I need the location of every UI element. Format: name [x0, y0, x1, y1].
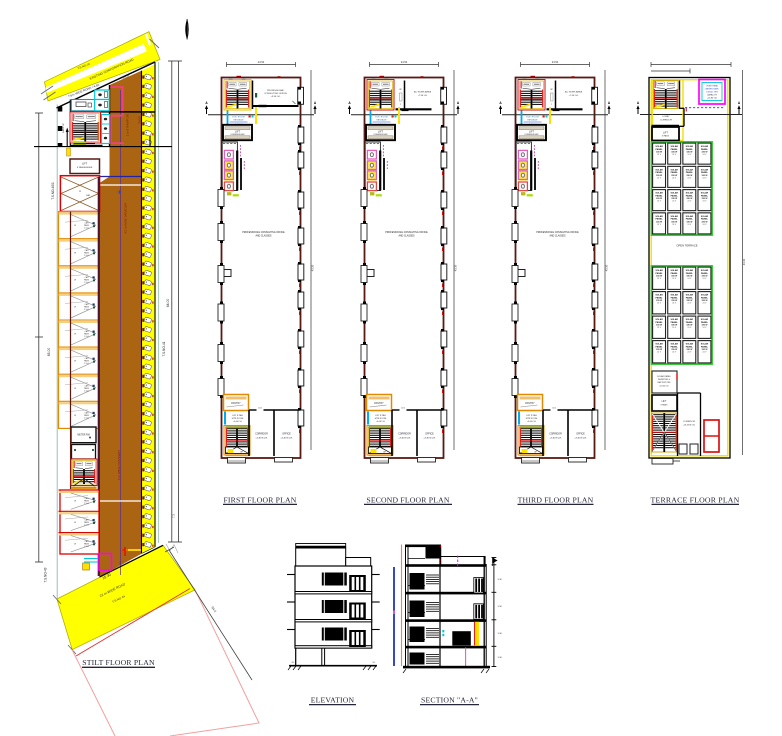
svg-text:WATER TANK: WATER TANK [705, 88, 719, 91]
svg-text:ELE. ROOM: ELE. ROOM [526, 117, 538, 119]
svg-text:94.0: 94.0 [210, 606, 217, 614]
svg-text:3.30: 3.30 [498, 606, 503, 608]
svg-text:SECTION "A-A": SECTION "A-A" [421, 695, 478, 704]
svg-text:PANEL: PANEL [686, 321, 694, 324]
svg-text:METER RM: METER RM [77, 435, 89, 437]
svg-text:+7.30 LVL: +7.30 LVL [418, 95, 429, 97]
svg-text:SOLAR: SOLAR [670, 168, 678, 171]
svg-text:SOLAR: SOLAR [686, 192, 694, 195]
svg-text:2.5x5: 2.5x5 [84, 417, 89, 419]
svg-text:SOLAR: SOLAR [701, 215, 709, 218]
svg-text:A: A [205, 101, 208, 105]
svg-text:7.3: 7.3 [172, 514, 176, 518]
svg-text:+3.30 M LVL: +3.30 M LVL [280, 438, 293, 440]
svg-text:+3.30 M LVL: +3.30 M LVL [574, 438, 587, 440]
svg-text:BATTERY RM: BATTERY RM [658, 381, 671, 384]
svg-text:SOLAR: SOLAR [701, 343, 709, 346]
svg-text:SOLAR: SOLAR [655, 192, 663, 195]
svg-text:A: A [738, 101, 741, 105]
svg-text:SOLAR: SOLAR [655, 343, 663, 346]
svg-text:SOLAR: SOLAR [670, 269, 678, 272]
svg-text:PANEL: PANEL [671, 148, 679, 151]
svg-text:65.00: 65.00 [47, 348, 51, 357]
svg-text:+18.45 M LVL: +18.45 M LVL [683, 425, 696, 427]
svg-text:SOLAR PANEL: SOLAR PANEL [657, 375, 672, 378]
svg-text:SOLAR: SOLAR [701, 192, 709, 195]
svg-text:PANEL: PANEL [671, 218, 679, 221]
svg-text:SOLAR: SOLAR [655, 318, 663, 321]
svg-text:2.5x5: 2.5x5 [84, 282, 89, 284]
svg-text:1010: 1010 [385, 79, 389, 81]
svg-text:SOLAR: SOLAR [686, 343, 694, 346]
svg-text:PANEL: PANEL [671, 345, 679, 348]
svg-text:PANEL: PANEL [671, 171, 679, 174]
svg-text:1010: 1010 [372, 79, 376, 81]
svg-text:LIFT 8 PAS: LIFT 8 PAS [375, 414, 386, 417]
svg-text:PANEL: PANEL [671, 321, 679, 324]
svg-text:T.S.NO-41: T.S.NO-41 [162, 341, 166, 356]
svg-text:+18.45 LVL: +18.45 LVL [659, 386, 669, 388]
svg-text:RAMP UP: RAMP UP [62, 123, 65, 133]
svg-text:T.S.NO-43: T.S.NO-43 [44, 567, 48, 582]
svg-text:PANEL: PANEL [701, 296, 709, 299]
svg-text:1 in 8 RAMP DN: 1 in 8 RAMP DN [126, 114, 130, 136]
svg-text:PASSAGE: PASSAGE [376, 119, 387, 122]
svg-text:CORRIDOR: CORRIDOR [549, 434, 562, 436]
svg-text:24.54: 24.54 [258, 60, 265, 64]
svg-text:LIFT: LIFT [663, 132, 668, 135]
svg-text:SOLAR: SOLAR [686, 294, 694, 297]
svg-text:LIFT 8 PAS: LIFT 8 PAS [526, 414, 537, 417]
svg-text:2.5x5: 2.5x5 [84, 228, 89, 230]
svg-text:PASSAGE: PASSAGE [527, 119, 538, 122]
svg-text:PANTRY: PANTRY [525, 402, 535, 405]
svg-text:SOLAR: SOLAR [686, 215, 694, 218]
svg-text:STILT FLOOR PLAN: STILT FLOOR PLAN [82, 658, 155, 667]
svg-text:6 m WIDE DRIVEWAY: 6 m WIDE DRIVEWAY [117, 450, 121, 480]
svg-text:PANEL: PANEL [686, 171, 694, 174]
svg-text:OVER HEAD: OVER HEAD [706, 85, 719, 88]
svg-text:PROFESSIONAL: PROFESSIONAL [267, 89, 285, 92]
svg-text:24.54: 24.54 [552, 60, 559, 64]
svg-text:+3.30 M LVL: +3.30 M LVL [549, 438, 562, 440]
svg-text:64.00: 64.00 [166, 299, 170, 308]
svg-text:SOLAR: SOLAR [670, 343, 678, 346]
svg-text:SOLAR: SOLAR [701, 294, 709, 297]
svg-text:PANEL: PANEL [656, 148, 664, 151]
svg-text:PANEL: PANEL [701, 194, 709, 197]
svg-text:SOLAR: SOLAR [670, 145, 678, 148]
svg-text:CORRIDOR: CORRIDOR [398, 434, 411, 436]
svg-text:SOLAR: SOLAR [670, 215, 678, 218]
svg-text:ELEVATION: ELEVATION [311, 695, 355, 704]
svg-text:T.S.NO-40/1: T.S.NO-40/1 [51, 182, 55, 200]
svg-text:+3.30 M LVL: +3.30 M LVL [423, 438, 436, 440]
svg-text:PANEL: PANEL [671, 194, 679, 197]
svg-text:SOLAR: SOLAR [701, 318, 709, 321]
svg-text:1010: 1010 [536, 79, 540, 81]
svg-text:PANEL: PANEL [686, 194, 694, 197]
svg-text:SOLAR: SOLAR [655, 215, 663, 218]
svg-text:SOLAR: SOLAR [686, 145, 694, 148]
svg-text:8 PASSENGER: 8 PASSENGER [231, 133, 246, 136]
svg-text:1010: 1010 [229, 79, 233, 81]
svg-text:PANTRY: PANTRY [374, 402, 384, 405]
svg-text:PANEL: PANEL [671, 272, 679, 275]
svg-text:A: A [314, 101, 317, 105]
svg-text:PANTRY: PANTRY [231, 402, 241, 405]
svg-text:2.5x5: 2.5x5 [84, 390, 89, 392]
svg-text:43.30: 43.30 [311, 264, 315, 271]
svg-text:A: A [637, 101, 640, 105]
svg-text:CORRIDOR: CORRIDOR [255, 434, 268, 436]
svg-text:43.30: 43.30 [742, 258, 746, 265]
svg-text:+0.00 LVL: +0.00 LVL [527, 421, 537, 423]
svg-text:24.54: 24.54 [401, 60, 408, 64]
svg-text:8 PASSENGER: 8 PASSENGER [77, 166, 93, 169]
svg-text:PANEL: PANEL [656, 171, 664, 174]
svg-text:+3.30 M LVL: +3.30 M LVL [255, 438, 268, 440]
svg-text:PROFESSIONAL CONSULTING OFFICE: PROFESSIONAL CONSULTING OFFICE [536, 231, 579, 234]
svg-text:PANEL: PANEL [701, 171, 709, 174]
svg-text:MTR ROOM: MTR ROOM [232, 418, 244, 420]
svg-text:PANEL: PANEL [686, 272, 694, 275]
svg-text:LIFT: LIFT [662, 401, 667, 403]
svg-text:2.5x5: 2.5x5 [84, 524, 89, 526]
svg-text:CORRIDOR: CORRIDOR [660, 120, 672, 122]
svg-text:A: A [499, 101, 502, 105]
svg-text:PANEL: PANEL [701, 148, 709, 151]
svg-text:2.5x5: 2.5x5 [84, 503, 89, 505]
svg-text:AC WORK AREA: AC WORK AREA [414, 91, 431, 94]
svg-text:OFFICE: OFFICE [576, 434, 585, 436]
svg-text:PANEL: PANEL [701, 272, 709, 275]
svg-text:8 PASS: 8 PASS [662, 135, 670, 138]
svg-text:SOLAR: SOLAR [701, 269, 709, 272]
svg-text:PANEL: PANEL [656, 272, 664, 275]
svg-text:PANEL: PANEL [686, 218, 694, 221]
svg-text:4.5 m WIDE DRIVEWAY: 4.5 m WIDE DRIVEWAY [124, 202, 128, 234]
svg-text:+7.30 LVL: +7.30 LVL [569, 95, 580, 97]
svg-text:+3.30 M LVL: +3.30 M LVL [398, 438, 411, 440]
svg-text:LIFT: LIFT [378, 130, 384, 134]
svg-text:3.30: 3.30 [498, 657, 503, 659]
svg-text:3.30: 3.30 [498, 579, 503, 581]
svg-text:SOLAR: SOLAR [670, 192, 678, 195]
svg-text:2.5x5: 2.5x5 [84, 546, 89, 548]
svg-text:THIRD FLOOR PLAN: THIRD FLOOR PLAN [518, 495, 594, 504]
svg-text:8 PASSENGER: 8 PASSENGER [525, 133, 540, 136]
svg-text:UP: UP [534, 452, 538, 454]
svg-text:A: A [457, 101, 460, 105]
svg-text:SOLAR: SOLAR [686, 269, 694, 272]
svg-text:PANEL: PANEL [701, 218, 709, 221]
svg-text:8 PASSENGER: 8 PASSENGER [374, 133, 389, 136]
svg-text:UP: UP [240, 452, 244, 454]
svg-text:SOLAR: SOLAR [670, 294, 678, 297]
svg-text:CAR: CAR [86, 194, 91, 197]
svg-text:INVERTER &: INVERTER & [658, 379, 671, 381]
svg-text:PANEL: PANEL [686, 345, 694, 348]
svg-text:1010: 1010 [552, 408, 556, 410]
svg-text:AND CLASSES: AND CLASSES [398, 235, 415, 238]
svg-text:SOLAR: SOLAR [670, 318, 678, 321]
svg-text:CORRIDOR: CORRIDOR [683, 421, 695, 423]
svg-text:PANEL: PANEL [671, 296, 679, 299]
svg-text:SOLAR: SOLAR [655, 168, 663, 171]
svg-text:SHOP: SHOP [138, 116, 142, 124]
svg-text:CAPACITY: CAPACITY [707, 94, 718, 97]
svg-text:LIFT: LIFT [529, 130, 535, 134]
svg-text:1010: 1010 [523, 79, 527, 81]
svg-text:2.5x5: 2.5x5 [84, 336, 89, 338]
svg-text:PASSAGE: PASSAGE [233, 119, 244, 122]
svg-text:2.5x5: 2.5x5 [84, 309, 89, 311]
svg-text:PANEL: PANEL [686, 296, 694, 299]
svg-text:PANEL: PANEL [701, 321, 709, 324]
svg-text:1010: 1010 [242, 79, 246, 81]
svg-text:MTR ROOM: MTR ROOM [526, 418, 538, 420]
svg-text:GL: GL [480, 663, 484, 665]
svg-text:+16.80 LVL: +16.80 LVL [707, 98, 718, 100]
svg-text:SOLAR: SOLAR [655, 145, 663, 148]
svg-text:2: 2 [400, 104, 401, 106]
svg-text:1010: 1010 [401, 408, 405, 410]
svg-text:+0.00 LVL: +0.00 LVL [233, 421, 243, 423]
svg-text:FIRST FLOOR PLAN: FIRST FLOOR PLAN [223, 495, 296, 504]
svg-text:43.30: 43.30 [605, 264, 609, 271]
svg-text:+0.00 LVL: +0.00 LVL [376, 421, 386, 423]
svg-text:ELE. ROOM: ELE. ROOM [375, 117, 387, 119]
svg-text:LIFT: LIFT [235, 130, 241, 134]
svg-text:A: A [608, 101, 611, 105]
svg-text:SOLAR: SOLAR [655, 269, 663, 272]
svg-text:SOLAR: SOLAR [701, 168, 709, 171]
svg-text:TERRACE FLOOR PLAN: TERRACE FLOOR PLAN [651, 495, 740, 504]
svg-text:SOLAR: SOLAR [655, 294, 663, 297]
svg-text:OFFICE: OFFICE [425, 434, 434, 436]
svg-text:OPEN TERRACE: OPEN TERRACE [676, 244, 697, 248]
svg-text:2.5x5: 2.5x5 [84, 363, 89, 365]
svg-text:8 PASS: 8 PASS [661, 404, 669, 407]
svg-text:LOBBY: LOBBY [662, 116, 670, 118]
svg-text:LIFT 8 PAS: LIFT 8 PAS [232, 414, 243, 417]
svg-text:UP: UP [383, 452, 387, 454]
svg-text:A: A [348, 101, 351, 105]
svg-text:1010: 1010 [258, 408, 262, 410]
svg-text:2.5x5: 2.5x5 [84, 255, 89, 257]
svg-text:PANEL: PANEL [656, 194, 664, 197]
svg-text:AC WORK AREA: AC WORK AREA [565, 91, 582, 94]
svg-text:CONSULTING OFFICE: CONSULTING OFFICE [264, 93, 287, 95]
svg-text:GL: GL [373, 662, 377, 664]
svg-text:ELE. ROOM: ELE. ROOM [232, 117, 244, 119]
svg-text:43.30: 43.30 [454, 264, 458, 271]
svg-text:PANEL: PANEL [656, 218, 664, 221]
svg-text:AND CLASSES: AND CLASSES [549, 235, 566, 238]
svg-text:SOLAR: SOLAR [701, 145, 709, 148]
svg-text:3.30: 3.30 [498, 633, 503, 635]
svg-text:PROFESSIONAL CONSULTING OFFICE: PROFESSIONAL CONSULTING OFFICE [385, 231, 428, 234]
svg-text:SECOND FLOOR PLAN: SECOND FLOOR PLAN [366, 495, 450, 504]
svg-text:PANEL: PANEL [701, 345, 709, 348]
svg-text:PANEL: PANEL [686, 148, 694, 151]
svg-text:PANEL: PANEL [656, 296, 664, 299]
svg-text:2: 2 [551, 104, 552, 106]
svg-text:AND CLASSES: AND CLASSES [255, 235, 272, 238]
svg-text:LIFT: LIFT [82, 162, 88, 166]
svg-text:10000 LTRS: 10000 LTRS [706, 92, 718, 94]
svg-text:SOLAR: SOLAR [686, 318, 694, 321]
svg-text:PROFESSIONAL CONSULTING OFFICE: PROFESSIONAL CONSULTING OFFICE [242, 231, 285, 234]
svg-text:MTR ROOM: MTR ROOM [375, 418, 387, 420]
svg-text:SOLAR: SOLAR [686, 168, 694, 171]
svg-text:OFFICE: OFFICE [282, 434, 291, 436]
svg-text:+3.30 LVL: +3.30 LVL [271, 96, 282, 98]
svg-text:PANEL: PANEL [656, 321, 664, 324]
svg-text:GL: GL [292, 662, 296, 664]
svg-text:PANEL: PANEL [656, 345, 664, 348]
